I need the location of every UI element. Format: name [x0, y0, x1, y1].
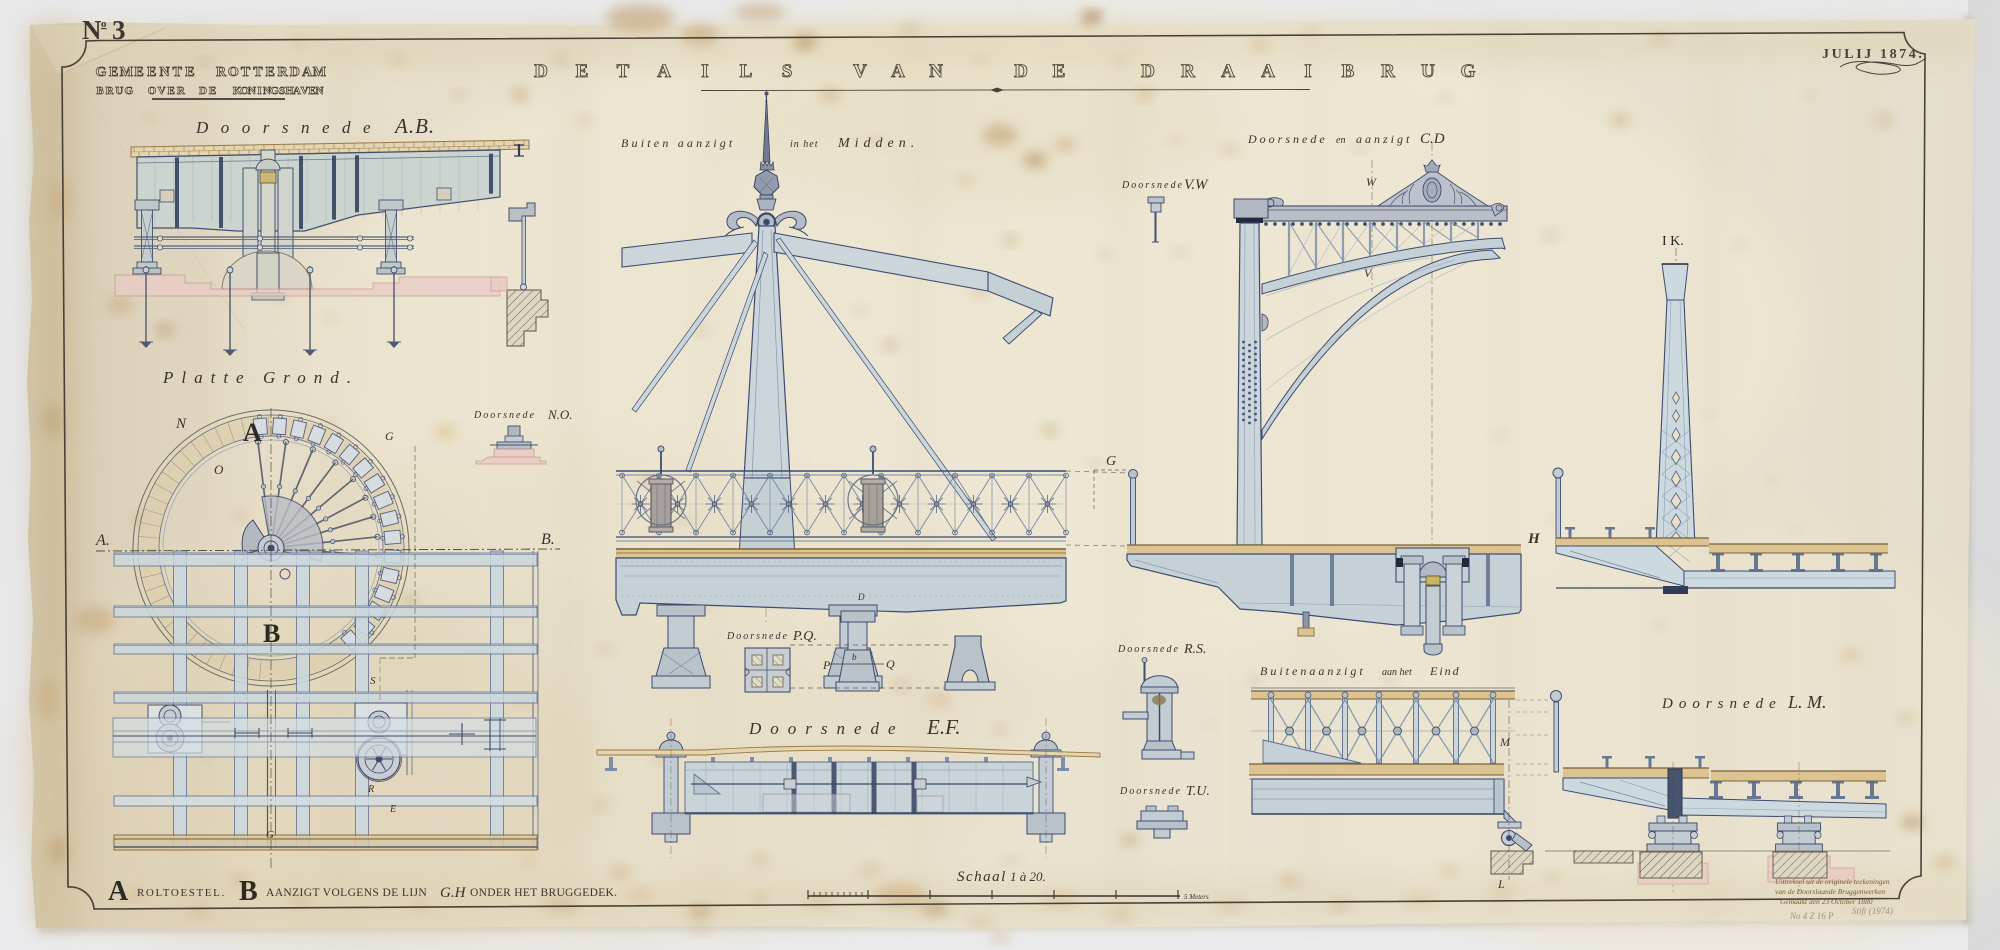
- svg-text:U: U: [115, 85, 123, 97]
- svg-text:P: P: [822, 658, 831, 672]
- svg-text:L: L: [740, 61, 753, 82]
- svg-text:van de Doorslaande Bruggenwerk: van de Doorslaande Bruggenwerken: [1775, 887, 1885, 896]
- svg-text:G.H: G.H: [440, 885, 467, 901]
- svg-text:A: A: [657, 61, 671, 82]
- svg-text:U: U: [1421, 61, 1435, 82]
- svg-text:E: E: [389, 804, 396, 815]
- svg-text:in het: in het: [790, 139, 819, 150]
- svg-text:E.F.: E.F.: [926, 715, 960, 739]
- svg-text:No 4 Z 16 P: No 4 Z 16 P: [1789, 911, 1834, 921]
- svg-text:R: R: [216, 65, 227, 80]
- svg-text:T: T: [173, 65, 183, 80]
- svg-text:Grond.: Grond.: [263, 368, 359, 387]
- svg-text:I: I: [257, 85, 261, 97]
- svg-text:Doorsnede: Doorsnede: [1117, 644, 1180, 655]
- svg-text:G: G: [385, 429, 394, 443]
- svg-text:Q: Q: [886, 657, 895, 671]
- svg-text:I K.: I K.: [1662, 234, 1684, 249]
- svg-text:D: D: [1014, 61, 1028, 82]
- svg-text:N.O.: N.O.: [547, 407, 573, 422]
- svg-text:A: A: [891, 61, 905, 82]
- svg-text:E: E: [109, 65, 118, 80]
- svg-text:Eind: Eind: [1429, 664, 1461, 678]
- svg-text:N: N: [929, 61, 943, 82]
- svg-text:E: E: [266, 65, 275, 80]
- svg-text:G: G: [96, 65, 107, 80]
- svg-text:Gemaakt den 23 October 1880: Gemaakt den 23 October 1880: [1780, 897, 1873, 906]
- svg-text:L. M.: L. M.: [1787, 692, 1827, 712]
- svg-text:A: A: [1261, 61, 1275, 82]
- svg-text:H: H: [1527, 531, 1541, 547]
- svg-text:D: D: [290, 65, 300, 80]
- svg-text:L: L: [1497, 877, 1505, 891]
- svg-text:N: N: [159, 65, 169, 80]
- svg-text:O: O: [148, 85, 157, 97]
- svg-text:D: D: [534, 61, 548, 82]
- svg-text:1 à 20.: 1 à 20.: [1010, 869, 1046, 884]
- svg-text:Doorsnede: Doorsnede: [1121, 180, 1184, 191]
- svg-text:aanzigt: aanzigt: [1356, 132, 1412, 146]
- svg-text:C.D: C.D: [1420, 131, 1445, 147]
- svg-text:Doorsnede: Doorsnede: [1661, 696, 1782, 712]
- svg-text:b: b: [852, 652, 857, 662]
- svg-text:I: I: [701, 61, 708, 82]
- svg-text:P.Q.: P.Q.: [792, 629, 817, 644]
- svg-text:R: R: [1181, 61, 1195, 82]
- svg-text:Buitenaanzigt: Buitenaanzigt: [1260, 664, 1366, 678]
- svg-text:A.: A.: [95, 532, 110, 549]
- svg-text:E: E: [168, 85, 175, 97]
- svg-text:A: A: [243, 418, 262, 447]
- svg-text:W: W: [1366, 175, 1377, 189]
- svg-text:R: R: [277, 65, 288, 80]
- svg-text:R: R: [367, 784, 374, 795]
- svg-text:O: O: [228, 65, 239, 80]
- svg-text:S: S: [279, 85, 285, 97]
- svg-text:O: O: [214, 462, 224, 477]
- svg-text:N: N: [82, 15, 102, 45]
- svg-text:N: N: [316, 85, 324, 97]
- svg-text:ROLTOESTEL.: ROLTOESTEL.: [137, 887, 226, 899]
- svg-text:o: o: [101, 18, 107, 30]
- svg-text:E: E: [1053, 61, 1066, 82]
- svg-text:R: R: [106, 85, 115, 97]
- svg-text:Buiten aanzigt: Buiten aanzigt: [621, 136, 735, 150]
- svg-text:AANZIGT VOLGENS DE LIJN: AANZIGT VOLGENS DE LIJN: [266, 887, 427, 899]
- svg-text:B.: B.: [541, 531, 555, 548]
- svg-text:Schaal: Schaal: [957, 869, 1007, 885]
- svg-text:Platte: Platte: [162, 368, 252, 387]
- svg-text:B: B: [263, 619, 280, 648]
- svg-text:G: G: [266, 829, 274, 841]
- svg-text:JULIJ 1874.: JULIJ 1874.: [1822, 47, 1925, 62]
- svg-text:B: B: [96, 85, 104, 97]
- svg-text:G: G: [1461, 61, 1476, 82]
- svg-text:B: B: [239, 876, 258, 907]
- svg-text:Doorsnede: Doorsnede: [1119, 786, 1182, 797]
- svg-text:Doorsnede: Doorsnede: [473, 410, 536, 421]
- svg-text:G: G: [270, 85, 279, 97]
- svg-text:R.S.: R.S.: [1183, 642, 1207, 657]
- svg-text:N: N: [175, 416, 187, 432]
- svg-text:V: V: [853, 61, 867, 82]
- svg-text:3: 3: [112, 15, 126, 45]
- svg-text:D: D: [857, 592, 865, 602]
- svg-text:E: E: [185, 65, 194, 80]
- svg-text:B: B: [1342, 61, 1355, 82]
- svg-text:T.U.: T.U.: [1186, 784, 1210, 799]
- svg-text:Midden.: Midden.: [837, 136, 919, 151]
- svg-text:T: T: [241, 65, 251, 80]
- svg-text:Doorsnede: Doorsnede: [748, 719, 905, 738]
- svg-text:5 Meters: 5 Meters: [1184, 893, 1209, 901]
- svg-text:Stift (1974): Stift (1974): [1852, 906, 1893, 916]
- svg-text:S: S: [782, 61, 793, 82]
- svg-text:S: S: [370, 675, 376, 687]
- svg-text:T: T: [253, 65, 263, 80]
- svg-text:D: D: [199, 85, 207, 97]
- svg-text:A.B.: A.B.: [393, 114, 435, 138]
- svg-text:E: E: [576, 61, 589, 82]
- svg-text:R: R: [177, 85, 186, 97]
- svg-text:V: V: [301, 85, 309, 97]
- svg-text:E: E: [209, 85, 216, 97]
- svg-text:A: A: [108, 876, 129, 907]
- svg-text:G: G: [1106, 454, 1116, 469]
- svg-text:I: I: [1304, 61, 1311, 82]
- svg-text:Doorsnede: Doorsnede: [726, 631, 789, 642]
- svg-text:E: E: [134, 65, 143, 80]
- svg-text:D: D: [1141, 61, 1155, 82]
- svg-text:ONDER HET BRUGGEDEK.: ONDER HET BRUGGEDEK.: [470, 887, 617, 899]
- svg-text:V: V: [158, 85, 166, 97]
- svg-text:N: N: [248, 85, 256, 97]
- svg-text:M: M: [313, 65, 326, 80]
- svg-text:Doorsnede: Doorsnede: [195, 118, 383, 137]
- svg-text:en: en: [1336, 135, 1345, 146]
- svg-text:T: T: [617, 61, 630, 82]
- svg-text:E: E: [147, 65, 156, 80]
- svg-text:M: M: [120, 65, 133, 80]
- svg-text:aan het: aan het: [1382, 667, 1412, 678]
- svg-text:A: A: [302, 65, 313, 80]
- svg-text:Uittreksel uit de originele te: Uittreksel uit de originele teekeningen: [1775, 877, 1890, 886]
- svg-text:Doorsnede: Doorsnede: [1247, 132, 1328, 146]
- svg-text:G: G: [125, 85, 134, 97]
- svg-text:V.W: V.W: [1184, 177, 1209, 193]
- svg-text:A: A: [1221, 61, 1235, 82]
- svg-text:R: R: [1381, 61, 1395, 82]
